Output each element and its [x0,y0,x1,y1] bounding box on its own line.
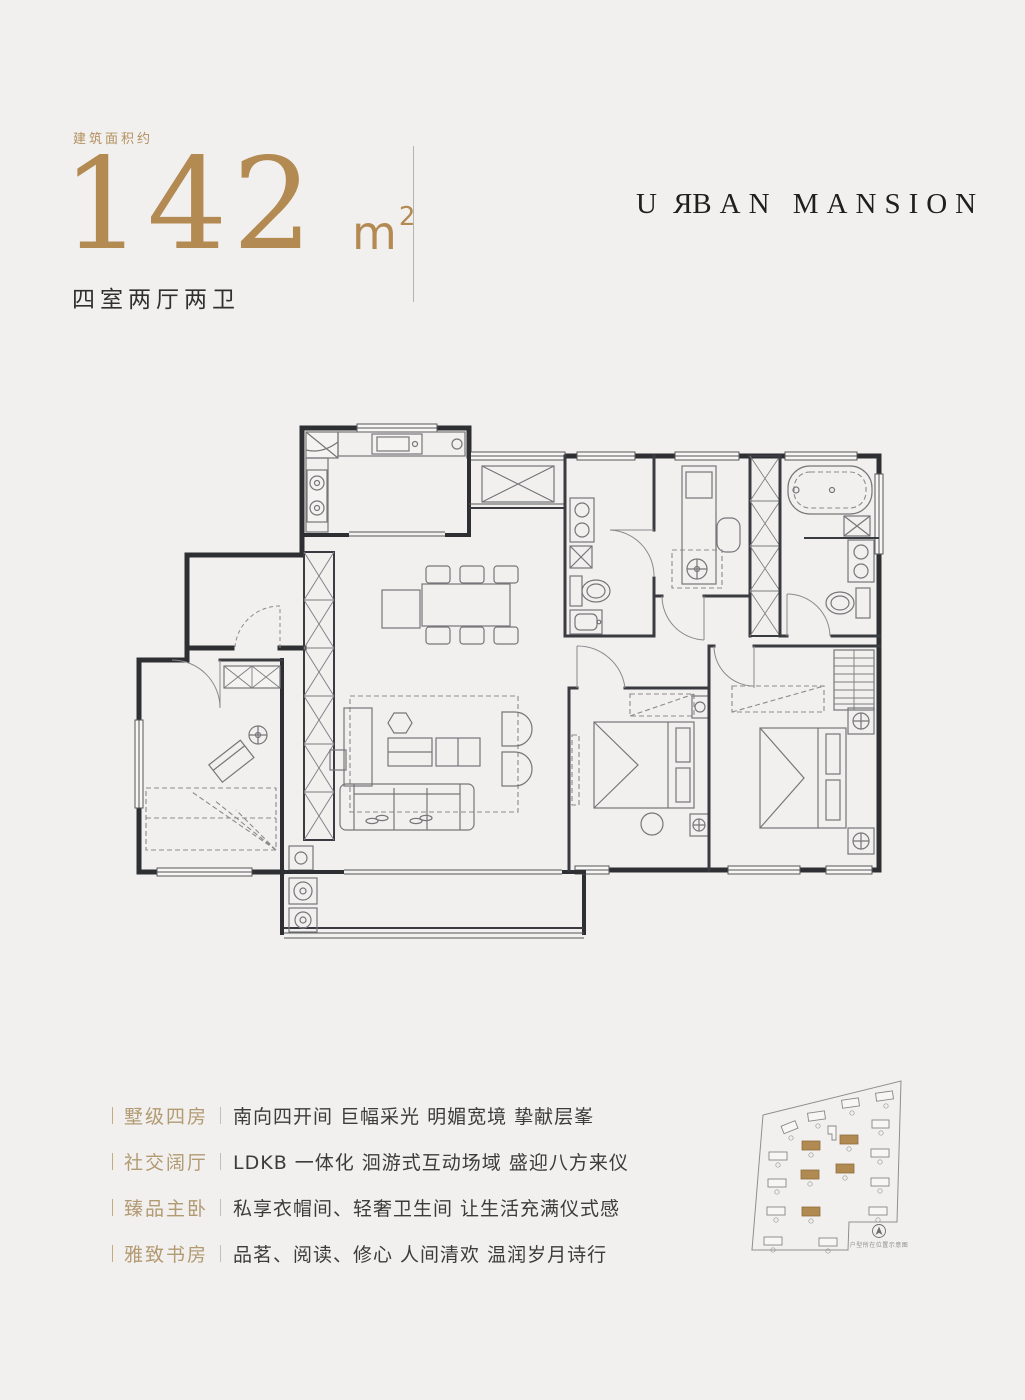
vanity [570,498,594,542]
bedroom-middle [569,646,709,870]
feature-text: 私享衣帽间、轻奢卫生间 让生活充满仪式感 [233,1194,620,1221]
feature-label: 社交阔厅 [124,1148,208,1175]
stove [307,470,327,522]
kitchen [302,428,469,536]
brand-mirrored-r: R [665,188,692,221]
study [654,456,750,640]
vanity [848,540,874,582]
feature-row: 臻品主卧 私享衣帽间、轻奢卫生间 让生活充满仪式感 [112,1196,629,1218]
bed [146,788,276,850]
master-bedroom [709,646,879,870]
corner-drain [452,439,462,449]
monitor [686,472,712,498]
brand-post: BAN MANSION [692,188,984,220]
equipment-platform [469,466,565,508]
highlighted-building [801,1170,819,1179]
feature-list: 墅级四房 南向四开间 巨幅采光 明媚宽境 挚献层峯 社交阔厅 LDKB 一体化 … [112,1104,629,1288]
feature-row: 雅致书房 品茗、阅读、修心 人间清欢 温润岁月诗行 [112,1242,629,1264]
windows [135,424,883,876]
poster: 建筑面积约 142 m2 四室两厅两卫 URBAN MANSION [0,0,1025,1400]
sofa [340,784,474,830]
bar-icon [112,1153,113,1170]
feature-label: 臻品主卧 [124,1194,208,1221]
bedroom-southwest [139,660,282,850]
highlighted-building [802,1207,820,1216]
north-arrow-icon [873,1225,886,1238]
bed [760,728,846,828]
bathroom-north [565,456,654,636]
feature-label: 墅级四房 [124,1102,208,1129]
armchair-2 [502,752,532,786]
tv-panel [572,735,579,805]
bar-icon [220,1199,221,1216]
balcony [284,870,584,932]
armchair [502,712,532,746]
brand-logo: URBAN MANSION [636,188,984,221]
bar-icon [220,1107,221,1124]
closet-strip [750,456,780,636]
laundry-basin [289,846,313,870]
layout-text: 四室两厅两卫 [72,280,240,314]
divider-line [413,146,414,302]
feature-text: LDKB 一体化 洄游式互动场域 盛迎八方来仪 [233,1148,629,1175]
site-plan: 户型所在位置示意图 [738,1068,996,1273]
dining-area [382,566,518,644]
area-value: 142 [62,142,318,268]
feature-text: 南向四开间 巨幅采光 明媚宽境 挚献层峯 [233,1102,594,1129]
highlighted-building [840,1135,858,1144]
bar-icon [220,1245,221,1262]
feature-text: 品茗、阅读、修心 人间清欢 温润岁月诗行 [233,1240,607,1267]
highlighted-building [802,1141,820,1150]
hexagon-table [388,713,412,733]
desk [209,740,254,782]
brand-pre: U [636,188,665,220]
bar-icon [112,1199,113,1216]
feature-row: 社交阔厅 LDKB 一体化 洄游式互动场域 盛迎八方来仪 [112,1150,629,1172]
highlighted-building [836,1164,854,1173]
cabinet [344,708,372,786]
master-bathroom [780,456,879,636]
hall-cabinets [304,552,334,840]
feature-label: 雅致书房 [124,1240,208,1267]
chair [717,518,740,552]
bar-icon [220,1153,221,1170]
site-plan-caption: 户型所在位置示意图 [850,1241,909,1249]
bed [594,722,694,808]
bathtub [788,466,872,514]
dining-table [422,584,510,626]
bar-icon [112,1107,113,1124]
site-buildings [764,1091,893,1253]
walk-in-closet [834,650,874,710]
stool [641,813,663,835]
side-table [382,590,420,628]
living-room [289,696,532,870]
area-unit-base: m [352,206,397,260]
toilet [570,576,610,606]
dining-chairs [426,566,518,644]
area-unit: m2 [352,204,415,256]
feature-row: 墅级四房 南向四开间 巨幅采光 明媚宽境 挚献层峯 [112,1104,629,1126]
toilet [826,588,870,618]
floor-plan [132,420,890,952]
entry [235,606,280,648]
bar-icon [112,1245,113,1262]
